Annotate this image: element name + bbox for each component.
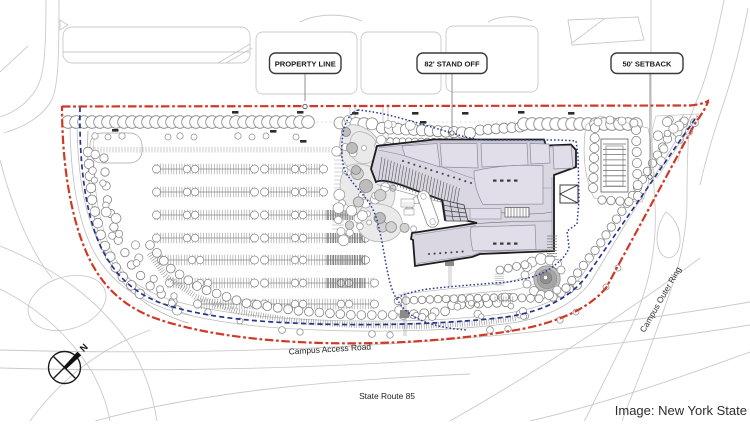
svg-text:State Route 85: State Route 85: [359, 391, 415, 401]
svg-text:50' SETBACK: 50' SETBACK: [622, 59, 672, 68]
svg-text:PROPERTY LINE: PROPERTY LINE: [275, 59, 336, 68]
svg-text:Image: New York State: Image: New York State: [615, 403, 747, 418]
svg-text:82' STAND OFF: 82' STAND OFF: [424, 59, 480, 68]
